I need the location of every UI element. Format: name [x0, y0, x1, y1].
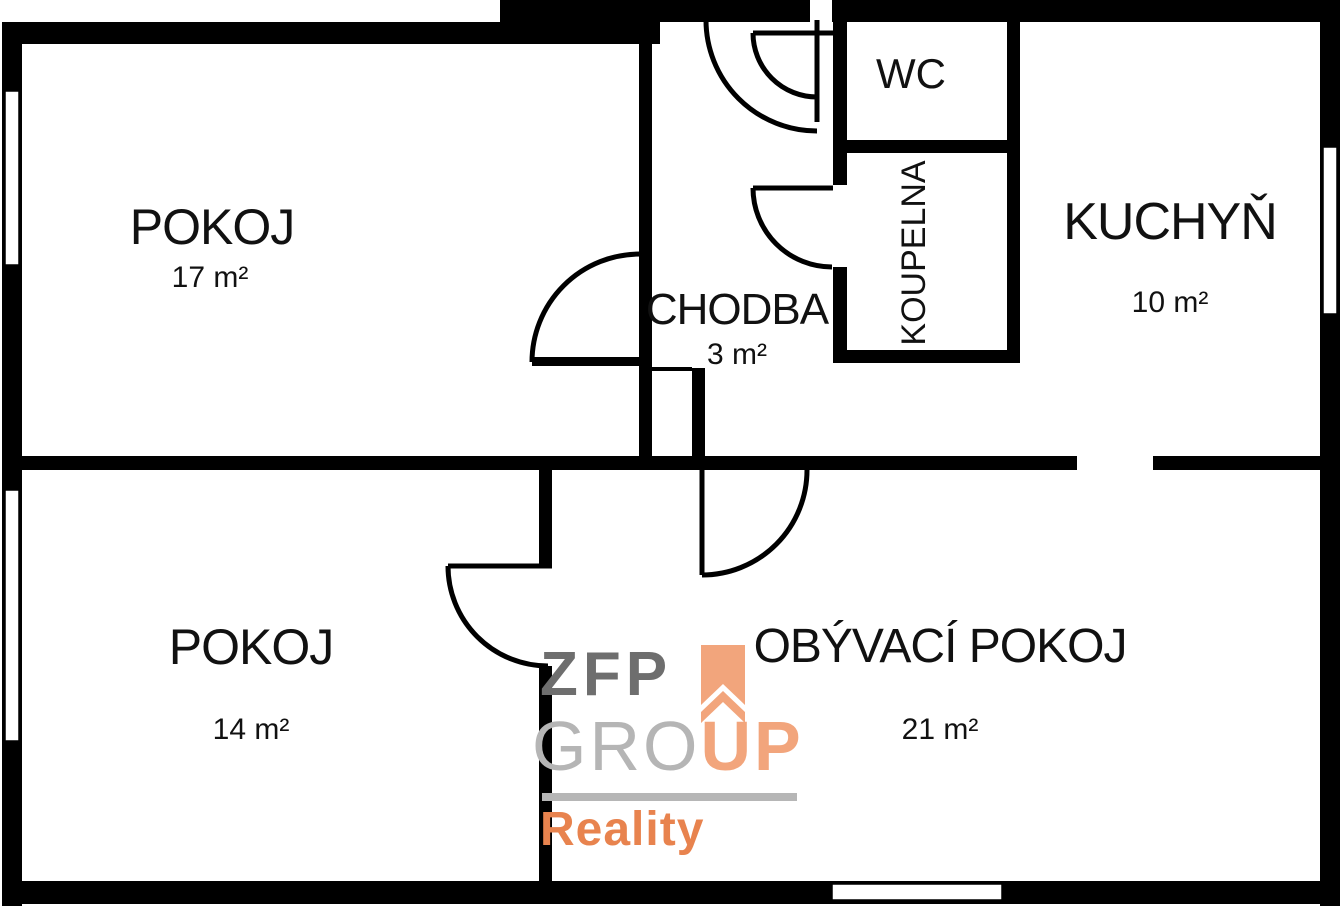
logo-divider-line: [542, 793, 797, 801]
logo-gro-text: GRO: [532, 707, 700, 785]
logo-up-text: UP: [700, 707, 803, 785]
logo-group-text: GROUP: [532, 711, 804, 781]
logo-reality-text: Reality: [540, 806, 704, 854]
floor-plan: POKOJ 17 m² CHODBA 3 m² WC KOUPELNA KUCH…: [0, 0, 1340, 906]
